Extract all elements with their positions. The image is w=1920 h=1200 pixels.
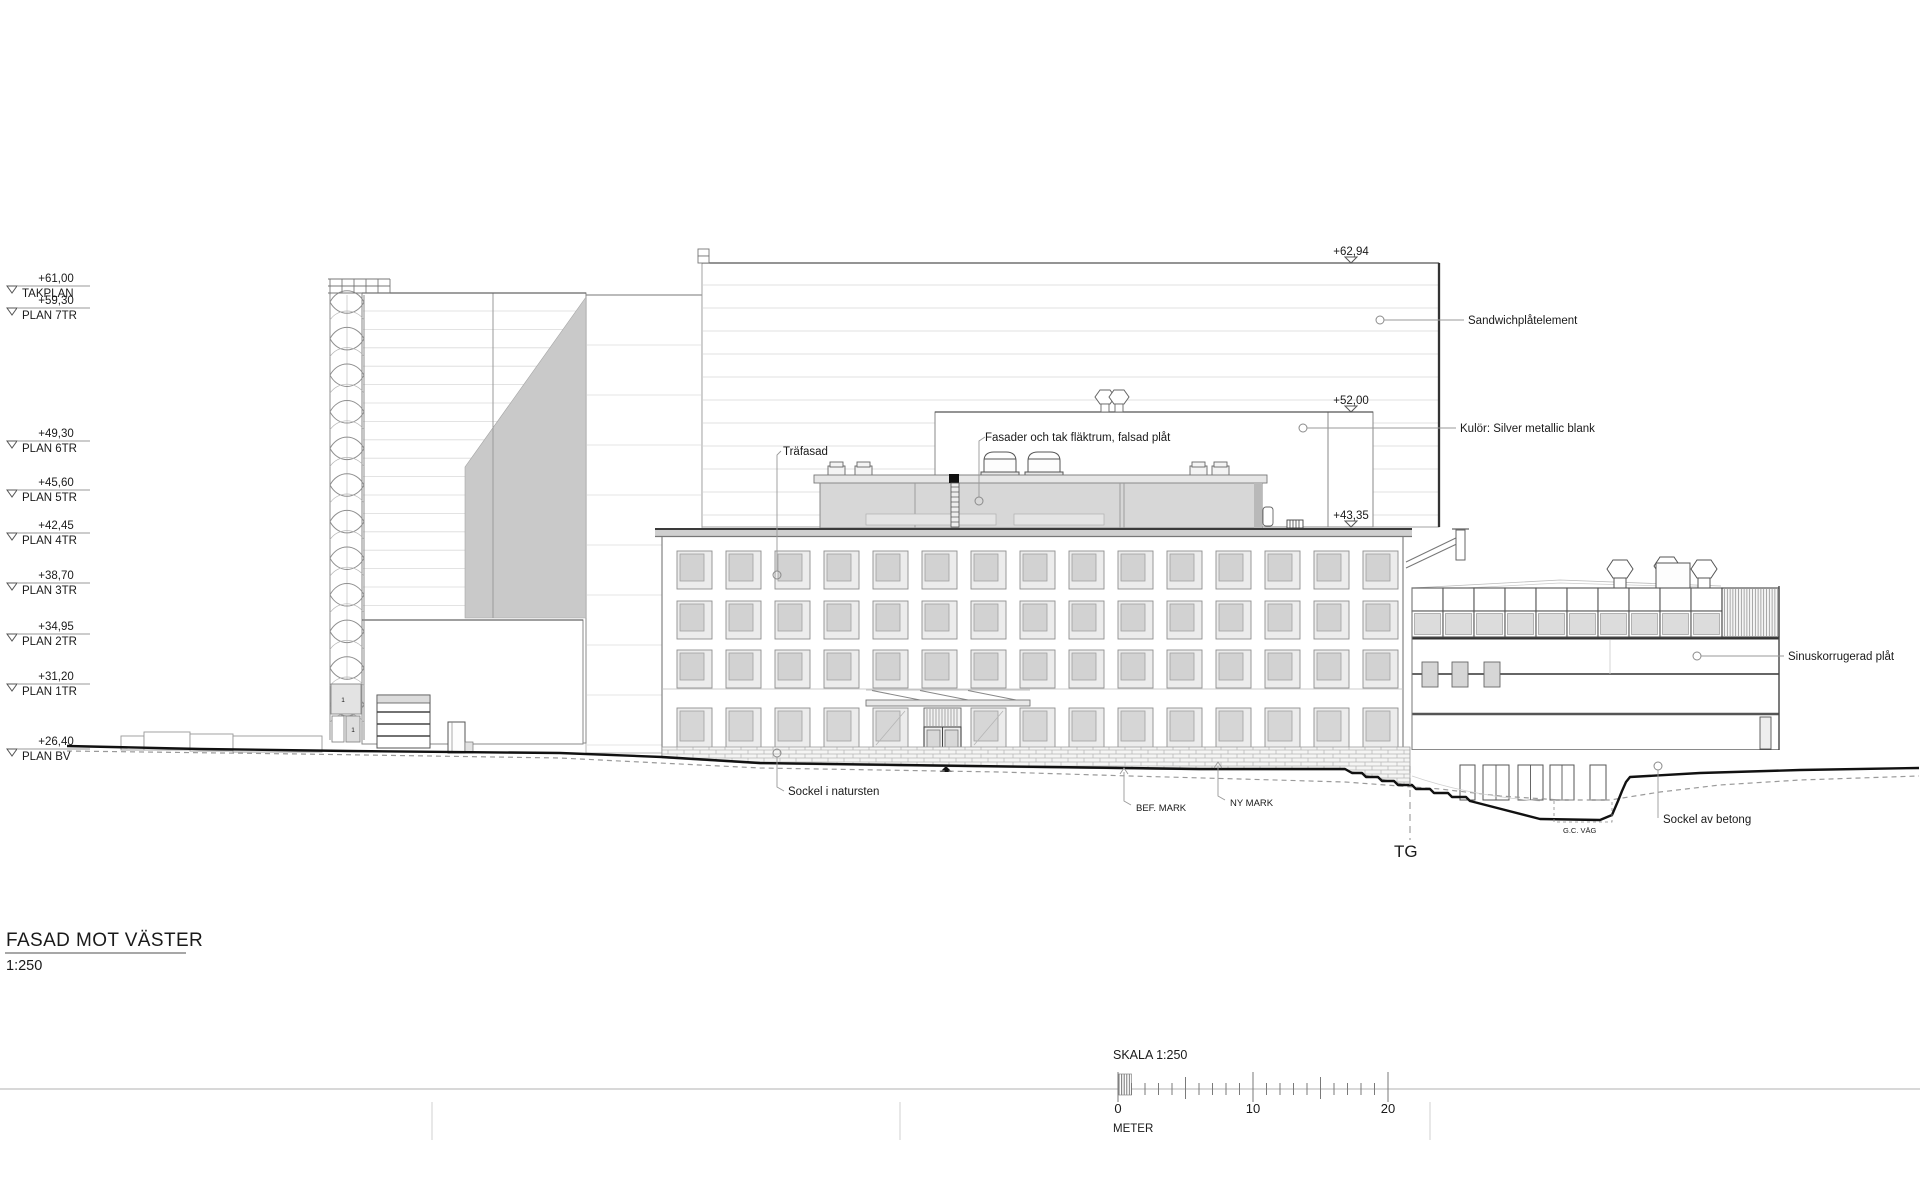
basement-doors	[1412, 750, 1779, 812]
tower	[362, 293, 586, 753]
drawing-scale: 1:250	[6, 958, 42, 974]
level-marker-6tr: +49,30 PLAN 6TR	[7, 428, 90, 455]
roof-grille	[1287, 520, 1303, 528]
roof-pipe	[1456, 530, 1465, 560]
svg-text:Sandwichplåtelement: Sandwichplåtelement	[1468, 315, 1578, 327]
svg-text:+26,40: +26,40	[38, 736, 74, 748]
svg-text:PLAN 3TR: PLAN 3TR	[22, 585, 77, 597]
annotation-sinus: Sinuskorrugerad plåt	[1693, 651, 1895, 663]
svg-text:Sockel av betong: Sockel av betong	[1663, 814, 1751, 826]
svg-text:0: 0	[1114, 1101, 1121, 1116]
vent-pipe	[1263, 507, 1273, 526]
svg-text:Sockel i natursten: Sockel i natursten	[788, 786, 879, 798]
svg-text:PLAN 4TR: PLAN 4TR	[22, 535, 77, 547]
level-marker-bv: +26,40 PLAN BV	[7, 736, 90, 763]
scale-bar: SKALA 1:250 0 10 20 METER	[0, 1048, 1920, 1140]
svg-text:+43,35: +43,35	[1333, 510, 1369, 522]
title-block: FASAD MOT VÄSTER 1:250	[5, 930, 203, 974]
svg-text:TG: TG	[1394, 842, 1418, 861]
right-building	[1406, 529, 1779, 812]
svg-text:G.C. VÄG: G.C. VÄG	[1563, 826, 1597, 835]
svg-text:PLAN 7TR: PLAN 7TR	[22, 310, 77, 322]
level-marker-5tr: +45,60 PLAN 5TR	[7, 477, 90, 504]
level-marker-1tr: +31,20 PLAN 1TR	[7, 671, 90, 698]
spot-elevation-6294: +62,94	[1333, 246, 1369, 263]
svg-text:+42,45: +42,45	[38, 520, 74, 532]
level-marker-2tr: +34,95 PLAN 2TR	[7, 621, 90, 648]
stair-door-label: 1	[341, 697, 345, 704]
svg-text:Kulör: Silver metallic blank: Kulör: Silver metallic blank	[1460, 423, 1595, 435]
svg-text:+45,60: +45,60	[38, 477, 74, 489]
louvre-boxes	[1422, 662, 1500, 687]
svg-text:+59,30: +59,30	[38, 295, 74, 307]
svg-text:+61,00: +61,00	[38, 273, 74, 285]
level-marker-7tr: +59,30 PLAN 7TR	[7, 295, 90, 322]
fold-marks	[432, 1102, 1430, 1140]
svg-text:20: 20	[1381, 1101, 1395, 1116]
annotation-bef-mark: BEF. MARK	[1120, 768, 1187, 814]
svg-text:Träfasad: Träfasad	[783, 446, 828, 458]
svg-text:+34,95: +34,95	[38, 621, 74, 633]
svg-text:+49,30: +49,30	[38, 428, 74, 440]
svg-text:Sinuskorrugerad plåt: Sinuskorrugerad plåt	[1788, 651, 1895, 663]
drawing-title: FASAD MOT VÄSTER	[6, 930, 203, 951]
svg-text:PLAN BV: PLAN BV	[22, 751, 71, 763]
level-marker-3tr: +38,70 PLAN 3TR	[7, 570, 90, 597]
main-building	[655, 528, 1412, 786]
svg-text:+52,00: +52,00	[1333, 395, 1369, 407]
level-marker-4tr: +42,45 PLAN 4TR	[7, 520, 90, 547]
level-markers: +61,00 TAKPLAN +59,30 PLAN 7TR +49,30 PL…	[7, 273, 90, 763]
elevation-drawing-sheet: 1 1	[0, 0, 1920, 1200]
svg-text:NY MARK: NY MARK	[1230, 798, 1274, 809]
svg-text:+31,20: +31,20	[38, 671, 74, 683]
svg-text:+62,94: +62,94	[1333, 246, 1369, 258]
svg-text:PLAN 5TR: PLAN 5TR	[22, 492, 77, 504]
scale-bar-label: SKALA 1:250	[1113, 1048, 1187, 1062]
svg-text:PLAN 6TR: PLAN 6TR	[22, 443, 77, 455]
hex-vent-icon	[1607, 557, 1717, 588]
svg-text:BEF. MARK: BEF. MARK	[1136, 803, 1187, 814]
stair-base: 1 1	[331, 684, 361, 742]
svg-text:PLAN 2TR: PLAN 2TR	[22, 636, 77, 648]
svg-text:Fasader och tak fläktrum, fals: Fasader och tak fläktrum, falsad plåt	[985, 432, 1171, 444]
svg-text:PLAN 1TR: PLAN 1TR	[22, 686, 77, 698]
stair-door-label: 1	[351, 727, 355, 734]
svg-text:10: 10	[1246, 1101, 1260, 1116]
stair-top-railing	[328, 279, 390, 295]
roof-antenna	[698, 249, 709, 263]
scale-bar-unit: METER	[1113, 1123, 1153, 1135]
side-door	[1760, 717, 1771, 749]
svg-text:+38,70: +38,70	[38, 570, 74, 582]
stair-section-block	[377, 695, 430, 748]
